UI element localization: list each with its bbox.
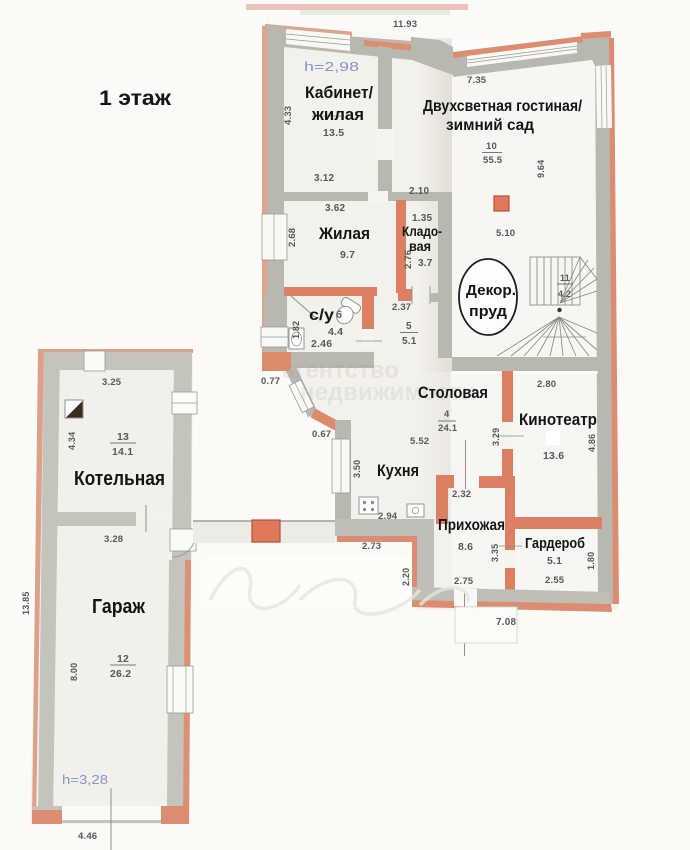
svg-text:Двухсветная гостиная/: Двухсветная гостиная/ <box>423 98 582 115</box>
svg-text:4.33: 4.33 <box>283 106 294 125</box>
svg-text:55.5: 55.5 <box>483 155 503 166</box>
svg-text:3.12: 3.12 <box>314 173 335 184</box>
svg-text:3.28: 3.28 <box>104 534 123 545</box>
svg-text:2.46: 2.46 <box>311 338 332 350</box>
svg-text:4.34: 4.34 <box>67 432 77 450</box>
svg-text:2.94: 2.94 <box>378 511 398 522</box>
svg-text:2.32: 2.32 <box>452 489 471 500</box>
svg-text:Столовая: Столовая <box>418 383 488 402</box>
svg-text:4.86: 4.86 <box>587 434 597 452</box>
svg-text:10: 10 <box>486 141 497 152</box>
svg-text:5.1: 5.1 <box>547 555 562 567</box>
svg-text:Декор.: Декор. <box>466 283 516 299</box>
svg-text:4: 4 <box>444 409 450 420</box>
svg-text:2.68: 2.68 <box>287 228 298 247</box>
svg-text:13.5: 13.5 <box>323 127 344 139</box>
svg-text:26.2: 26.2 <box>110 668 131 680</box>
svg-text:8.6: 8.6 <box>458 541 473 553</box>
svg-text:13.85: 13.85 <box>21 591 31 615</box>
svg-text:3.35: 3.35 <box>490 544 500 562</box>
svg-text:1.80: 1.80 <box>586 552 596 570</box>
svg-text:h=3,28: h=3,28 <box>62 772 108 787</box>
svg-text:0.77: 0.77 <box>261 376 280 387</box>
svg-text:13.6: 13.6 <box>543 450 564 462</box>
svg-text:5.10: 5.10 <box>496 228 515 239</box>
svg-text:2.10: 2.10 <box>409 186 430 197</box>
svg-text:13: 13 <box>117 431 129 443</box>
svg-text:1.82: 1.82 <box>291 321 301 339</box>
svg-text:Кухня: Кухня <box>377 461 419 480</box>
svg-text:3.7: 3.7 <box>418 258 433 269</box>
svg-text:Кабинет/: Кабинет/ <box>305 83 373 102</box>
svg-text:24.1: 24.1 <box>438 423 458 434</box>
svg-text:Гараж: Гараж <box>92 596 146 618</box>
svg-text:2.76: 2.76 <box>403 250 414 269</box>
svg-text:14.1: 14.1 <box>112 446 133 458</box>
svg-text:5.52: 5.52 <box>410 436 429 447</box>
svg-text:пруд: пруд <box>469 304 507 320</box>
svg-text:2.37: 2.37 <box>392 302 411 313</box>
svg-text:1 этаж: 1 этаж <box>99 87 172 110</box>
svg-text:9.64: 9.64 <box>536 160 546 178</box>
svg-text:7.35: 7.35 <box>467 75 487 86</box>
svg-text:с/у: с/у <box>309 307 334 324</box>
svg-text:жилая: жилая <box>311 105 364 124</box>
svg-text:0.67: 0.67 <box>312 429 331 440</box>
svg-text:4.4: 4.4 <box>328 326 343 338</box>
svg-text:Гардероб: Гардероб <box>525 535 585 552</box>
svg-text:Кинотеатр: Кинотеатр <box>519 410 597 429</box>
svg-text:8.00: 8.00 <box>69 663 79 681</box>
svg-text:3.29: 3.29 <box>491 428 501 446</box>
svg-text:4.46: 4.46 <box>78 831 97 842</box>
svg-text:3.25: 3.25 <box>102 377 122 388</box>
svg-text:Кладо-: Кладо- <box>402 223 442 239</box>
svg-text:7.08: 7.08 <box>496 617 517 628</box>
svg-text:Жилая: Жилая <box>318 224 370 243</box>
svg-text:Прихожая: Прихожая <box>438 517 505 534</box>
svg-text:3.50: 3.50 <box>352 460 362 478</box>
svg-text:Котельная: Котельная <box>74 468 165 490</box>
svg-text:2.20: 2.20 <box>401 568 411 586</box>
svg-text:2.73: 2.73 <box>362 541 381 552</box>
svg-text:9.7: 9.7 <box>340 249 355 261</box>
svg-text:2.80: 2.80 <box>537 379 556 390</box>
svg-text:h=2,98: h=2,98 <box>304 59 359 74</box>
svg-text:2.75: 2.75 <box>454 576 474 587</box>
svg-text:4.2: 4.2 <box>558 289 571 299</box>
svg-text:11.93: 11.93 <box>393 19 417 30</box>
svg-text:2.55: 2.55 <box>545 575 565 586</box>
svg-text:3.62: 3.62 <box>325 203 346 214</box>
svg-text:6: 6 <box>336 309 342 321</box>
svg-text:5.1: 5.1 <box>402 336 417 347</box>
svg-text:11: 11 <box>560 273 570 283</box>
svg-text:12: 12 <box>117 653 129 665</box>
svg-text:зимний сад: зимний сад <box>446 117 534 134</box>
svg-text:5: 5 <box>406 321 412 332</box>
